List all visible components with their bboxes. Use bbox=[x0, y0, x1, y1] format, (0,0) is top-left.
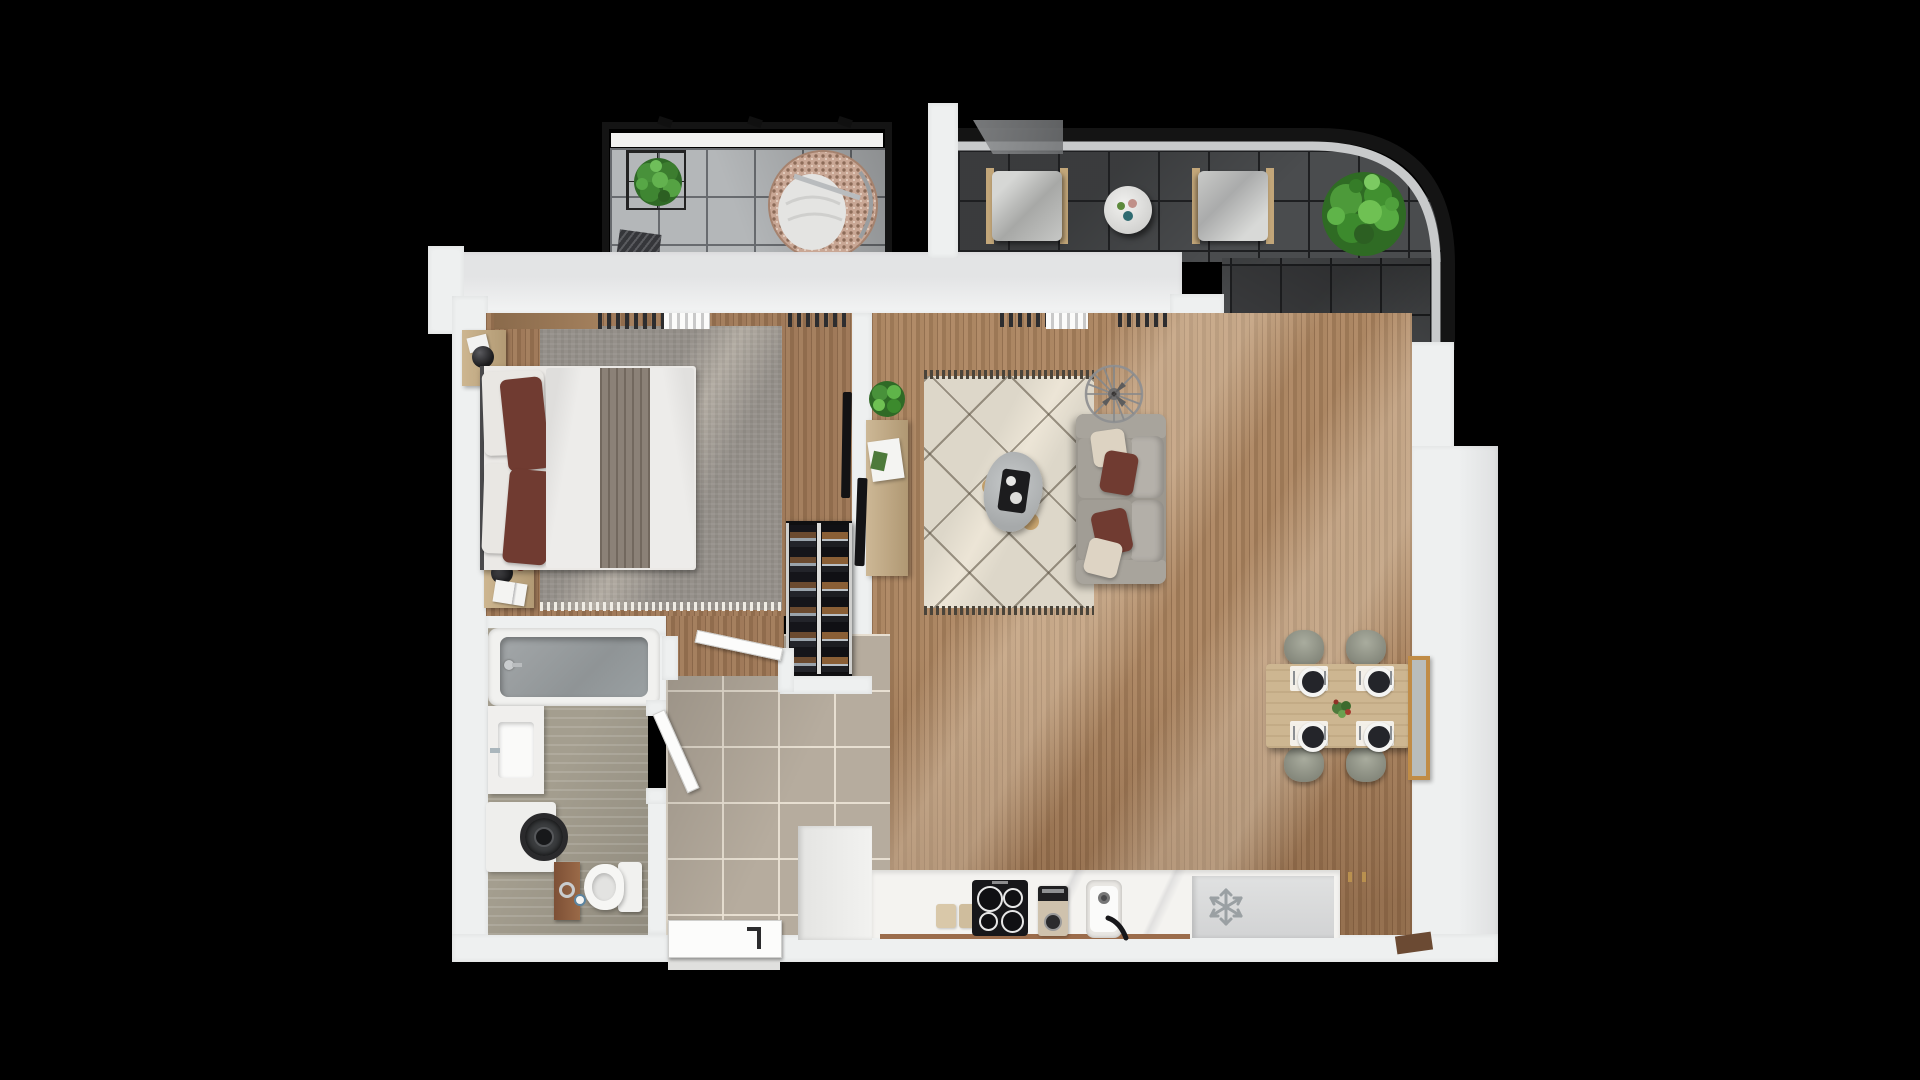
fridge-freezer bbox=[1192, 876, 1334, 938]
bed-runner bbox=[600, 368, 650, 568]
cabinet-handle-1 bbox=[1348, 872, 1352, 882]
terrace-side-table bbox=[1104, 186, 1152, 234]
terrace-chair-right bbox=[1192, 168, 1274, 244]
bedroom-top-shelf bbox=[494, 313, 600, 329]
centerpiece-icon bbox=[1326, 694, 1356, 724]
dining-chair-3 bbox=[1284, 746, 1324, 782]
coffee-table-tray bbox=[997, 468, 1031, 513]
terrace-plant-icon bbox=[1312, 162, 1416, 266]
snowflake-icon bbox=[1206, 887, 1246, 927]
nightstand-top-lamp bbox=[472, 346, 494, 368]
living-radiator-left bbox=[1000, 313, 1046, 327]
bedroom-radiator-right bbox=[788, 313, 848, 327]
wall-bath-hall-lower bbox=[646, 792, 668, 934]
kitchen-tall-cabinet bbox=[798, 826, 872, 940]
wall-terrace-left-strip bbox=[928, 103, 958, 258]
tray-decor-2 bbox=[1010, 492, 1022, 504]
bathroom-vanity bbox=[488, 706, 544, 794]
bedroom-door-jamb-left bbox=[662, 636, 678, 680]
place-setting-4 bbox=[1356, 721, 1394, 747]
vanity-sink bbox=[498, 722, 534, 778]
living-radiator-right bbox=[1118, 313, 1168, 327]
terrace-table-cup-green bbox=[1117, 202, 1125, 210]
bedroom-rug-fringe bbox=[540, 602, 782, 611]
terrace-table-cup-pink bbox=[1128, 199, 1137, 208]
bed bbox=[480, 366, 696, 570]
ceiling-fan-icon bbox=[1082, 362, 1146, 426]
sink-faucet-icon bbox=[1100, 912, 1136, 944]
vanity-faucet-icon bbox=[490, 748, 500, 753]
entrance-door bbox=[668, 920, 782, 958]
place-setting-1 bbox=[1290, 666, 1328, 692]
bathtub bbox=[488, 628, 660, 706]
wall-mirror bbox=[1408, 656, 1430, 780]
egg-chair-icon bbox=[764, 146, 882, 264]
dining-chair-1 bbox=[1284, 630, 1324, 666]
floor-plan-scene bbox=[0, 0, 1920, 1080]
place-setting-3 bbox=[1290, 721, 1328, 747]
living-rug-fringe-bottom bbox=[924, 606, 1094, 615]
living-curtain bbox=[1046, 313, 1088, 329]
dining-chair-2 bbox=[1346, 630, 1386, 666]
washing-machine bbox=[486, 802, 556, 872]
toilet-paper-holder bbox=[574, 894, 586, 906]
bathroom-wood-shelf bbox=[554, 862, 580, 920]
place-setting-2 bbox=[1356, 666, 1394, 692]
console-plant-icon bbox=[864, 376, 910, 422]
balcony-plant-icon bbox=[620, 144, 696, 220]
bath-door-jamb-bottom bbox=[646, 788, 666, 804]
terrace-table-cup-teal bbox=[1123, 211, 1133, 221]
bedroom-curtain bbox=[664, 313, 710, 329]
coffee-machine bbox=[1038, 886, 1068, 936]
tray-decor-1 bbox=[1006, 476, 1016, 486]
living-rug-fringe-top bbox=[924, 370, 1094, 379]
toilet bbox=[582, 860, 644, 916]
bedroom-wall-tv bbox=[841, 392, 852, 498]
bedroom-radiator-left bbox=[598, 313, 664, 329]
wall-bottom-left bbox=[452, 934, 668, 962]
induction-cooktop bbox=[972, 880, 1028, 936]
wine-rack bbox=[786, 521, 852, 676]
sofa bbox=[1076, 414, 1166, 584]
cutting-board-1 bbox=[936, 904, 956, 928]
counter-front-strip bbox=[880, 934, 1190, 939]
cabinet-handle-2 bbox=[1362, 872, 1366, 882]
nightstand-magazines bbox=[492, 580, 527, 607]
towel-ring-icon bbox=[559, 882, 575, 898]
wall-top-band bbox=[430, 252, 1182, 314]
sofa-pillow-maroon-1 bbox=[1099, 449, 1140, 496]
terrace-chair-left bbox=[986, 168, 1068, 244]
